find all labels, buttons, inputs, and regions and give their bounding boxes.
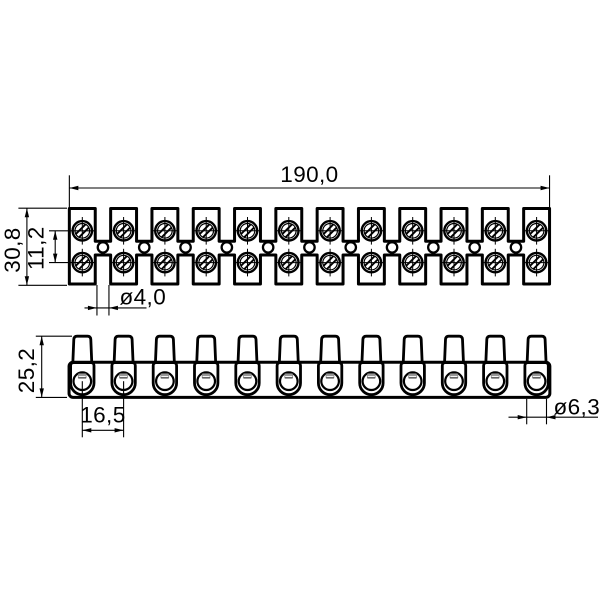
svg-text:190,0: 190,0 <box>280 162 338 187</box>
svg-text:ø4,0: ø4,0 <box>120 284 167 309</box>
svg-text:30,8: 30,8 <box>0 227 25 272</box>
svg-text:25,2: 25,2 <box>14 348 39 393</box>
svg-text:16,5: 16,5 <box>80 403 125 428</box>
svg-text:ø6,3: ø6,3 <box>554 395 600 420</box>
svg-text:11,2: 11,2 <box>23 226 48 270</box>
